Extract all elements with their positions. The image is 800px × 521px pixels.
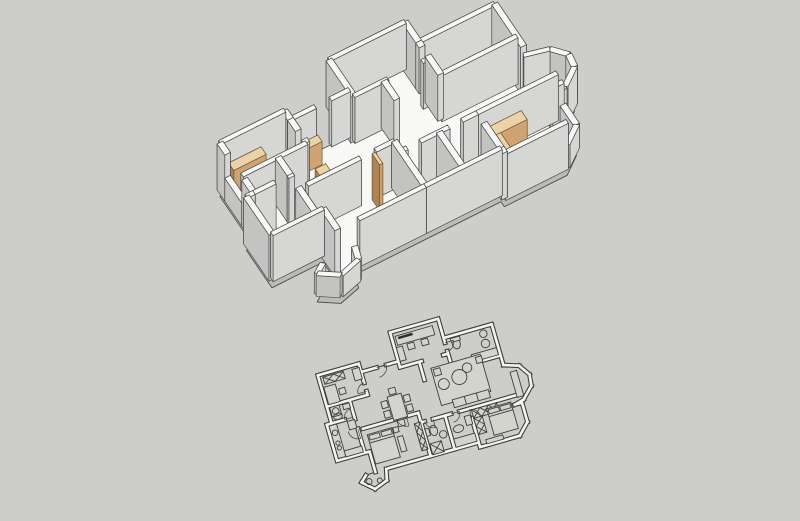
sketchup-viewport[interactable] bbox=[0, 0, 800, 521]
